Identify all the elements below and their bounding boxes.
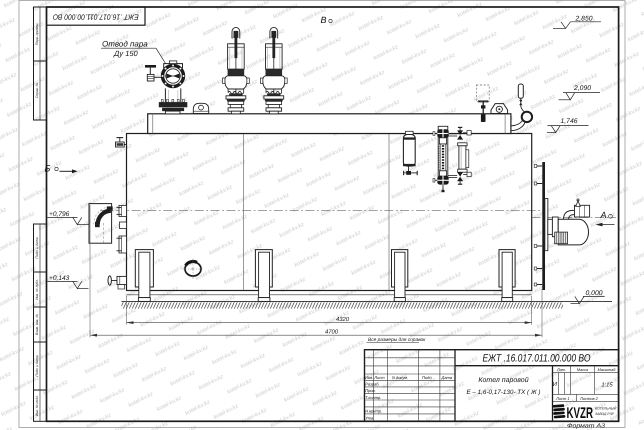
svg-text:Подп. и дата: Подп. и дата xyxy=(35,355,39,376)
svg-text:4320: 4320 xyxy=(336,316,350,323)
svg-text:Все размеры для справок: Все размеры для справок xyxy=(368,337,426,343)
svg-text:+0,143: +0,143 xyxy=(49,275,70,282)
svg-text:Масштаб: Масштаб xyxy=(598,368,617,372)
svg-text:ЕЖТ .16.017.011.00.000 ВО: ЕЖТ .16.017.011.00.000 ВО xyxy=(483,353,591,365)
svg-text:ЗАВОД РЗР: ЗАВОД РЗР xyxy=(595,412,615,416)
svg-text:Отвод пара: Отвод пара xyxy=(102,40,148,49)
svg-text:Подп.: Подп. xyxy=(422,375,433,380)
svg-text:КОТЕЛЬНЫЙ: КОТЕЛЬНЫЙ xyxy=(595,406,617,411)
svg-text:И: И xyxy=(553,381,558,388)
svg-text:Инв. № дубл.: Инв. № дубл. xyxy=(35,279,39,300)
svg-text:Подп. и дата: Подп. и дата xyxy=(35,237,39,258)
svg-text:В: В xyxy=(321,15,327,25)
svg-text:+0,796: +0,796 xyxy=(49,211,70,218)
svg-text:Пров.: Пров. xyxy=(365,388,376,393)
svg-text:Перв. примен.: Перв. примен. xyxy=(35,23,39,46)
svg-text:KVZR: KVZR xyxy=(567,405,594,422)
svg-text:Масса: Масса xyxy=(577,368,588,372)
svg-text:2,090: 2,090 xyxy=(573,85,591,92)
svg-text:А: А xyxy=(600,210,607,220)
svg-text:Листов 2: Листов 2 xyxy=(579,396,599,401)
svg-text:Н.контр.: Н.контр. xyxy=(365,409,382,414)
svg-text:Справ. №: Справ. № xyxy=(35,82,39,98)
svg-text:Разраб.: Разраб. xyxy=(365,382,379,387)
svg-text:Утв.: Утв. xyxy=(365,416,374,421)
svg-text:N докум.: N докум. xyxy=(392,375,408,380)
svg-text:0,000: 0,000 xyxy=(586,290,603,297)
svg-text:1,746: 1,746 xyxy=(561,118,578,125)
svg-text:Формат А3: Формат А3 xyxy=(567,423,606,430)
svg-text:Дата: Дата xyxy=(441,375,453,380)
svg-text:Т.контр.: Т.контр. xyxy=(365,395,381,400)
svg-text:Котел паровой: Котел паровой xyxy=(478,376,528,384)
svg-text:Инв. № подл.: Инв. № подл. xyxy=(35,395,39,416)
svg-text:ЕЖТ .16.017.011.00.000 ВО: ЕЖТ .16.017.011.00.000 ВО xyxy=(53,12,139,21)
svg-text:Лист: Лист xyxy=(373,375,385,380)
svg-text:Е – 1,6-0,17-130- ТХ ( Ж ): Е – 1,6-0,17-130- ТХ ( Ж ) xyxy=(466,389,540,396)
svg-text:Лит.: Лит. xyxy=(556,368,566,372)
svg-text:Взам. инв. №: Взам. инв. № xyxy=(35,314,39,335)
svg-text:Б: Б xyxy=(45,164,51,174)
svg-text:Ду 150: Ду 150 xyxy=(113,49,139,58)
svg-text:1:15: 1:15 xyxy=(601,383,613,389)
svg-text:Лист 1: Лист 1 xyxy=(555,396,570,401)
svg-text:4700: 4700 xyxy=(325,328,339,335)
svg-text:Изм.: Изм. xyxy=(365,375,374,380)
